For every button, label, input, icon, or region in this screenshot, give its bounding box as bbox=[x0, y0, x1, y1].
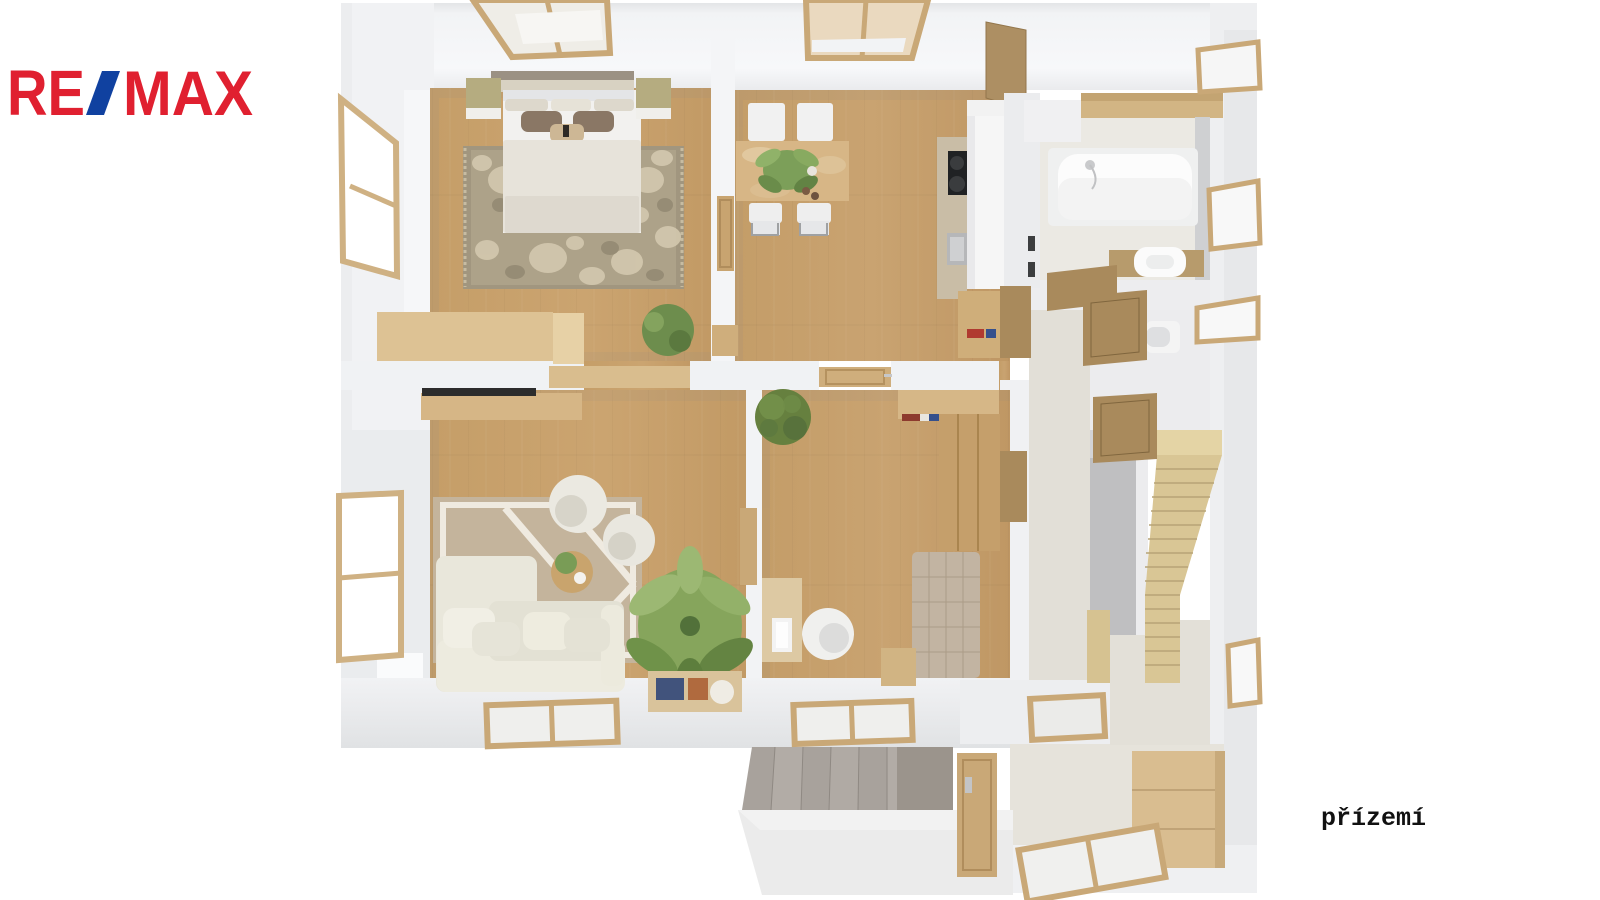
svg-text:MAX: MAX bbox=[123, 59, 253, 129]
svg-text:RE: RE bbox=[7, 57, 85, 129]
